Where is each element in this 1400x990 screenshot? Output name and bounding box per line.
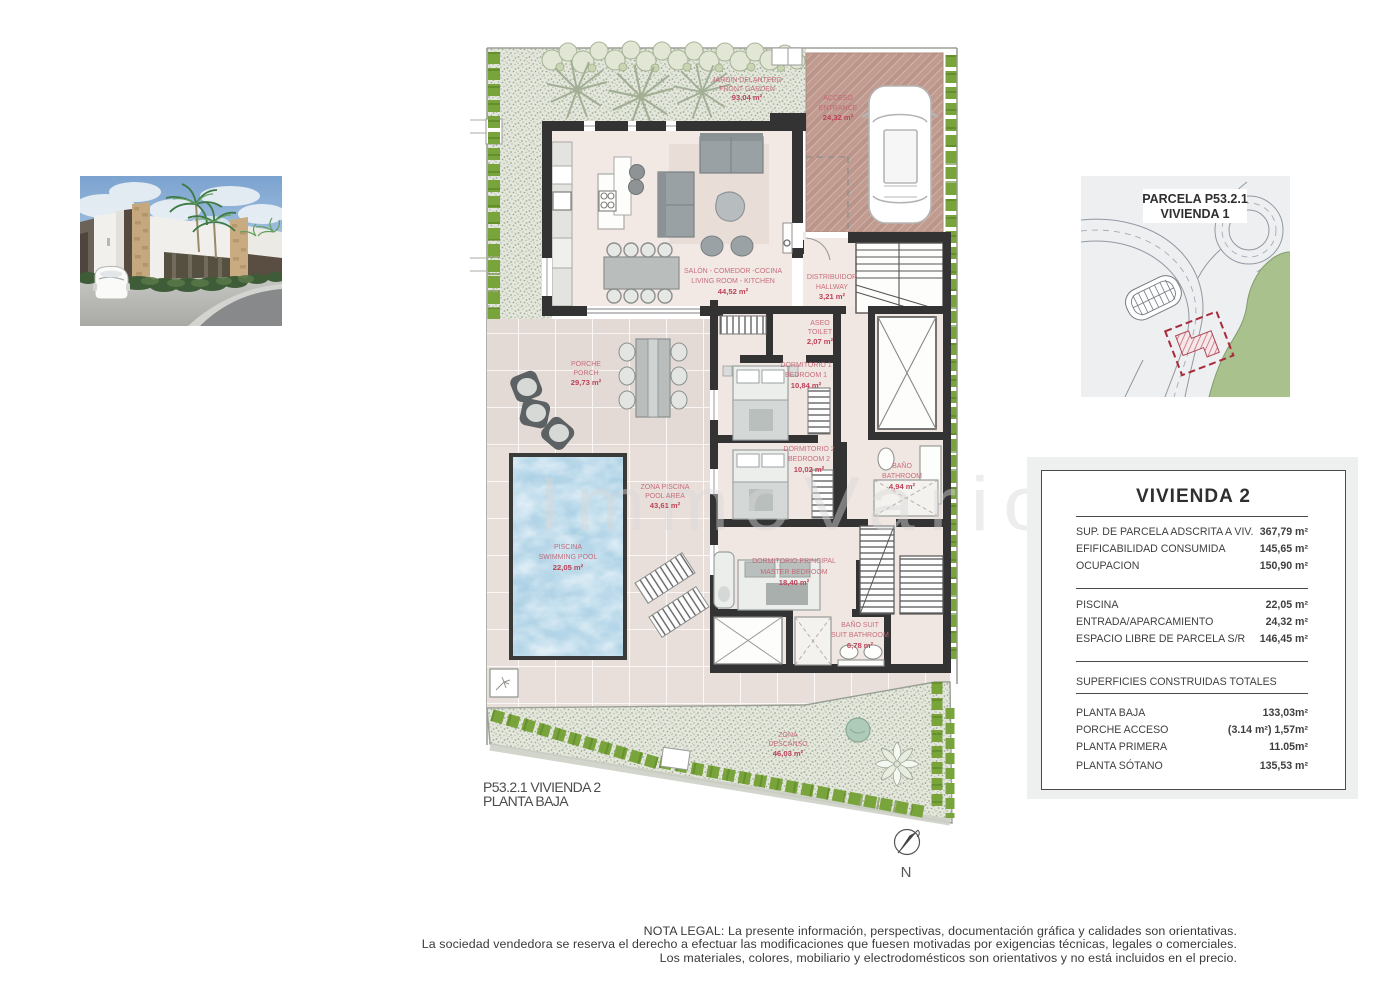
svg-text:DORMITORIO 2: DORMITORIO 2 xyxy=(783,446,834,453)
svg-text:SUIT BATHROOM: SUIT BATHROOM xyxy=(831,632,889,639)
svg-text:24,32 m²: 24,32 m² xyxy=(823,113,854,122)
svg-text:PORCH: PORCH xyxy=(573,370,598,377)
svg-text:BAÑO SUIT: BAÑO SUIT xyxy=(841,620,879,629)
svg-text:44,52 m²: 44,52 m² xyxy=(718,287,749,296)
svg-text:TOILET: TOILET xyxy=(808,329,833,336)
svg-text:SWIMMING POOL: SWIMMING POOL xyxy=(539,554,598,561)
svg-text:18,40 m²: 18,40 m² xyxy=(779,578,810,587)
svg-text:22,05 m²: 22,05 m² xyxy=(553,563,584,572)
svg-text:BATHROOM: BATHROOM xyxy=(882,473,922,480)
svg-text:ZONA PISCINA: ZONA PISCINA xyxy=(640,484,689,491)
svg-text:BEDROOM 2: BEDROOM 2 xyxy=(788,456,830,463)
svg-text:LIVING ROOM - KITCHEN: LIVING ROOM - KITCHEN xyxy=(691,278,775,285)
svg-text:2,07 m²: 2,07 m² xyxy=(807,337,834,346)
svg-text:SALÓN - COMEDOR -COCINA: SALÓN - COMEDOR -COCINA xyxy=(684,266,782,275)
svg-text:29,73 m²: 29,73 m² xyxy=(571,378,602,387)
svg-text:ENTRANCE: ENTRANCE xyxy=(819,105,858,112)
svg-text:HALLWAY: HALLWAY xyxy=(816,284,848,291)
svg-text:ImmoVario: ImmoVario xyxy=(538,462,1064,546)
svg-text:N: N xyxy=(901,864,912,881)
svg-text:DORMITORIO 1: DORMITORIO 1 xyxy=(780,362,831,369)
svg-text:43,61 m²: 43,61 m² xyxy=(650,501,681,510)
svg-text:MASTER BEDROOM: MASTER BEDROOM xyxy=(760,569,827,576)
svg-text:VIVIENDA 1: VIVIENDA 1 xyxy=(1160,207,1229,221)
svg-text:JARDIN DELANTERO: JARDIN DELANTERO xyxy=(712,77,783,84)
svg-text:PORCHE: PORCHE xyxy=(571,361,601,368)
svg-text:PISCINA: PISCINA xyxy=(554,544,582,551)
svg-text:DISTRIBUIDOR: DISTRIBUIDOR xyxy=(807,274,857,281)
svg-text:FRONT GARDEN: FRONT GARDEN xyxy=(719,86,775,93)
svg-text:ASEO: ASEO xyxy=(810,320,830,327)
svg-text:BEDROOM 1: BEDROOM 1 xyxy=(785,372,827,379)
svg-text:6,78 m²: 6,78 m² xyxy=(847,641,874,650)
svg-text:3,21 m²: 3,21 m² xyxy=(819,292,846,301)
svg-text:POOL AREA: POOL AREA xyxy=(645,493,685,500)
svg-text:DESCANSO: DESCANSO xyxy=(768,741,808,748)
svg-text:10,84 m²: 10,84 m² xyxy=(791,381,822,390)
svg-text:4,94 m²: 4,94 m² xyxy=(889,482,916,491)
svg-text:46,03 m²: 46,03 m² xyxy=(773,749,804,758)
svg-text:ACCESO: ACCESO xyxy=(823,95,853,102)
svg-text:10,02 m²: 10,02 m² xyxy=(794,465,825,474)
svg-text:93,04 m²: 93,04 m² xyxy=(732,93,763,102)
svg-text:ZONA: ZONA xyxy=(778,732,798,739)
svg-text:DORMITORIO PRINCIPAL: DORMITORIO PRINCIPAL xyxy=(752,558,836,565)
svg-text:BAÑO: BAÑO xyxy=(892,461,912,470)
svg-text:PARCELA P53.2.1: PARCELA P53.2.1 xyxy=(1142,192,1248,206)
